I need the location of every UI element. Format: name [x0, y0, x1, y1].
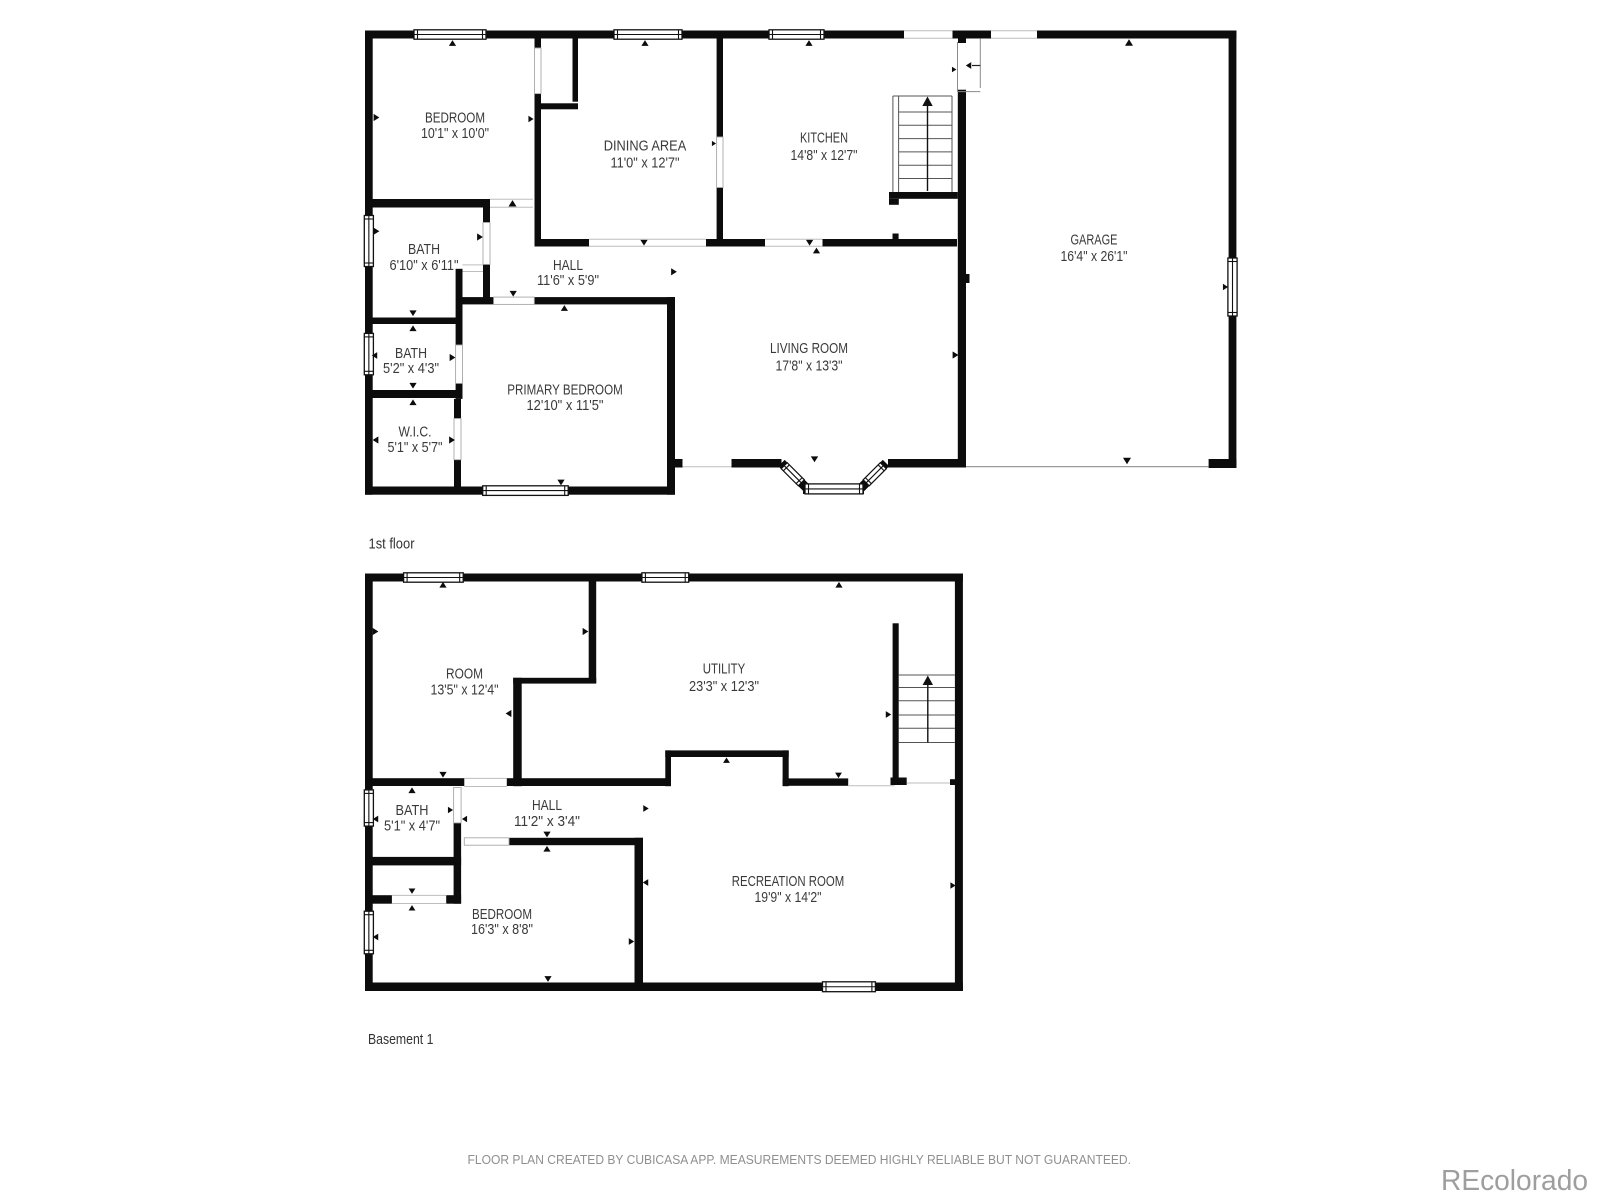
svg-text:5'1" x 5'7": 5'1" x 5'7" [388, 440, 443, 456]
svg-text:BATH: BATH [395, 346, 427, 362]
svg-text:5'2" x 4'3": 5'2" x 4'3" [383, 361, 439, 377]
svg-text:1st floor: 1st floor [369, 536, 415, 553]
svg-text:Basement 1: Basement 1 [368, 1031, 433, 1048]
svg-text:13'5" x 12'4": 13'5" x 12'4" [431, 683, 499, 699]
svg-text:PRIMARY BEDROOM: PRIMARY BEDROOM [507, 383, 623, 399]
svg-text:KITCHEN: KITCHEN [800, 131, 848, 147]
svg-text:ROOM: ROOM [446, 667, 483, 683]
svg-text:5'1" x 4'7": 5'1" x 4'7" [384, 819, 440, 835]
svg-text:23'3" x 12'3": 23'3" x 12'3" [689, 679, 759, 695]
svg-text:W.I.C.: W.I.C. [399, 425, 432, 441]
svg-text:16'3" x 8'8": 16'3" x 8'8" [471, 922, 533, 938]
svg-text:REcolorado: REcolorado [1441, 1165, 1588, 1197]
svg-text:19'9" x 14'2": 19'9" x 14'2" [755, 890, 822, 906]
svg-text:14'8" x 12'7": 14'8" x 12'7" [791, 148, 858, 164]
svg-text:17'8" x 13'3": 17'8" x 13'3" [776, 359, 843, 375]
svg-text:11'0" x 12'7": 11'0" x 12'7" [611, 156, 680, 172]
svg-text:11'6" x 5'9": 11'6" x 5'9" [537, 273, 599, 289]
svg-text:DINING AREA: DINING AREA [604, 139, 687, 155]
svg-text:BATH: BATH [396, 803, 429, 819]
svg-text:GARAGE: GARAGE [1071, 233, 1118, 249]
svg-text:BEDROOM: BEDROOM [472, 907, 532, 923]
svg-text:UTILITY: UTILITY [703, 662, 746, 678]
svg-text:16'4" x 26'1": 16'4" x 26'1" [1061, 249, 1128, 265]
svg-text:BEDROOM: BEDROOM [425, 111, 485, 127]
svg-text:12'10" x 11'5": 12'10" x 11'5" [527, 398, 604, 414]
svg-text:LIVING ROOM: LIVING ROOM [770, 341, 848, 357]
svg-text:HALL: HALL [553, 258, 583, 274]
svg-text:6'10" x 6'11": 6'10" x 6'11" [390, 258, 459, 274]
svg-text:HALL: HALL [532, 798, 562, 814]
svg-text:FLOOR PLAN CREATED BY CUBICASA: FLOOR PLAN CREATED BY CUBICASA APP. MEAS… [468, 1152, 1132, 1167]
svg-text:RECREATION ROOM: RECREATION ROOM [732, 874, 845, 890]
svg-text:10'1" x 10'0": 10'1" x 10'0" [421, 126, 489, 142]
svg-text:11'2" x 3'4": 11'2" x 3'4" [514, 814, 580, 830]
svg-text:BATH: BATH [408, 242, 440, 258]
